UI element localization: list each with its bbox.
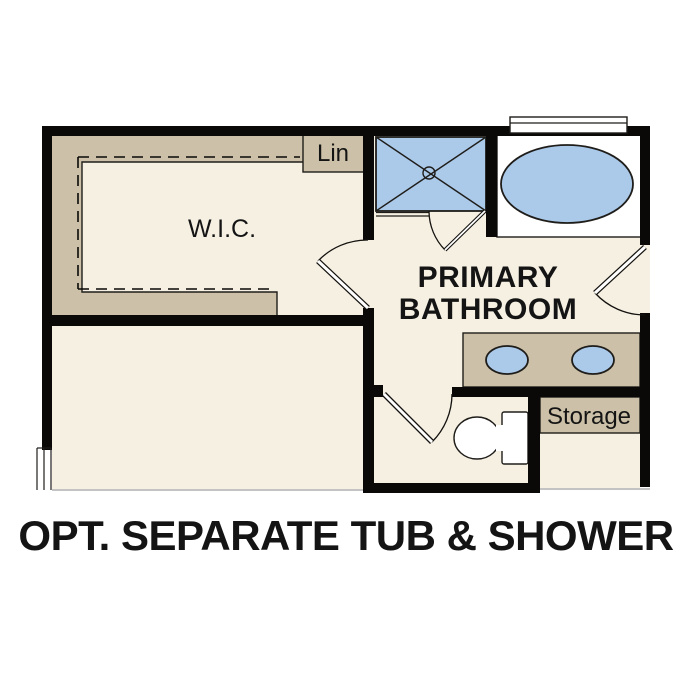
linen-label: Lin	[317, 140, 349, 167]
wall-toilet-right	[528, 397, 540, 483]
wall-central-upper	[363, 126, 374, 240]
closet-shelf-bottom	[52, 292, 277, 315]
floor-plan: W.I.C. Lin PRIMARY BATHROOM Storage OPT.…	[0, 0, 687, 687]
bedroom-floor	[52, 326, 363, 490]
sink-right-icon	[572, 346, 614, 374]
bedroom-window-icon	[37, 448, 51, 490]
wall-left	[42, 126, 52, 450]
wall-wic-bottom	[42, 315, 374, 326]
sink-left-icon	[486, 346, 528, 374]
wall-vanity-bottom	[452, 387, 650, 397]
primary-bathroom-label-line2: BATHROOM	[399, 293, 577, 326]
toilet-bowl	[454, 417, 500, 459]
wall-right-lower	[640, 313, 650, 487]
vanity	[463, 333, 640, 387]
caption-title: OPT. SEPARATE TUB & SHOWER	[18, 512, 673, 559]
wic-doorway-floor	[363, 240, 374, 308]
toilet-connector	[496, 425, 506, 451]
wall-bottom	[363, 483, 540, 493]
wall-right-upper	[640, 126, 650, 245]
storage-label: Storage	[547, 403, 631, 430]
wall-toilet-stub	[371, 385, 383, 397]
tub-window-icon	[510, 117, 627, 133]
bathtub-area	[497, 133, 641, 237]
primary-bathroom-label-line1: PRIMARY	[418, 261, 559, 294]
wall-shower-right	[486, 127, 497, 237]
closet-shelf-top	[52, 136, 303, 162]
wic-label: W.I.C.	[188, 215, 256, 243]
wall-central-lower	[363, 308, 374, 492]
bathtub-icon	[501, 145, 633, 223]
shower	[376, 137, 486, 216]
entry-doorway-floor	[640, 245, 650, 313]
